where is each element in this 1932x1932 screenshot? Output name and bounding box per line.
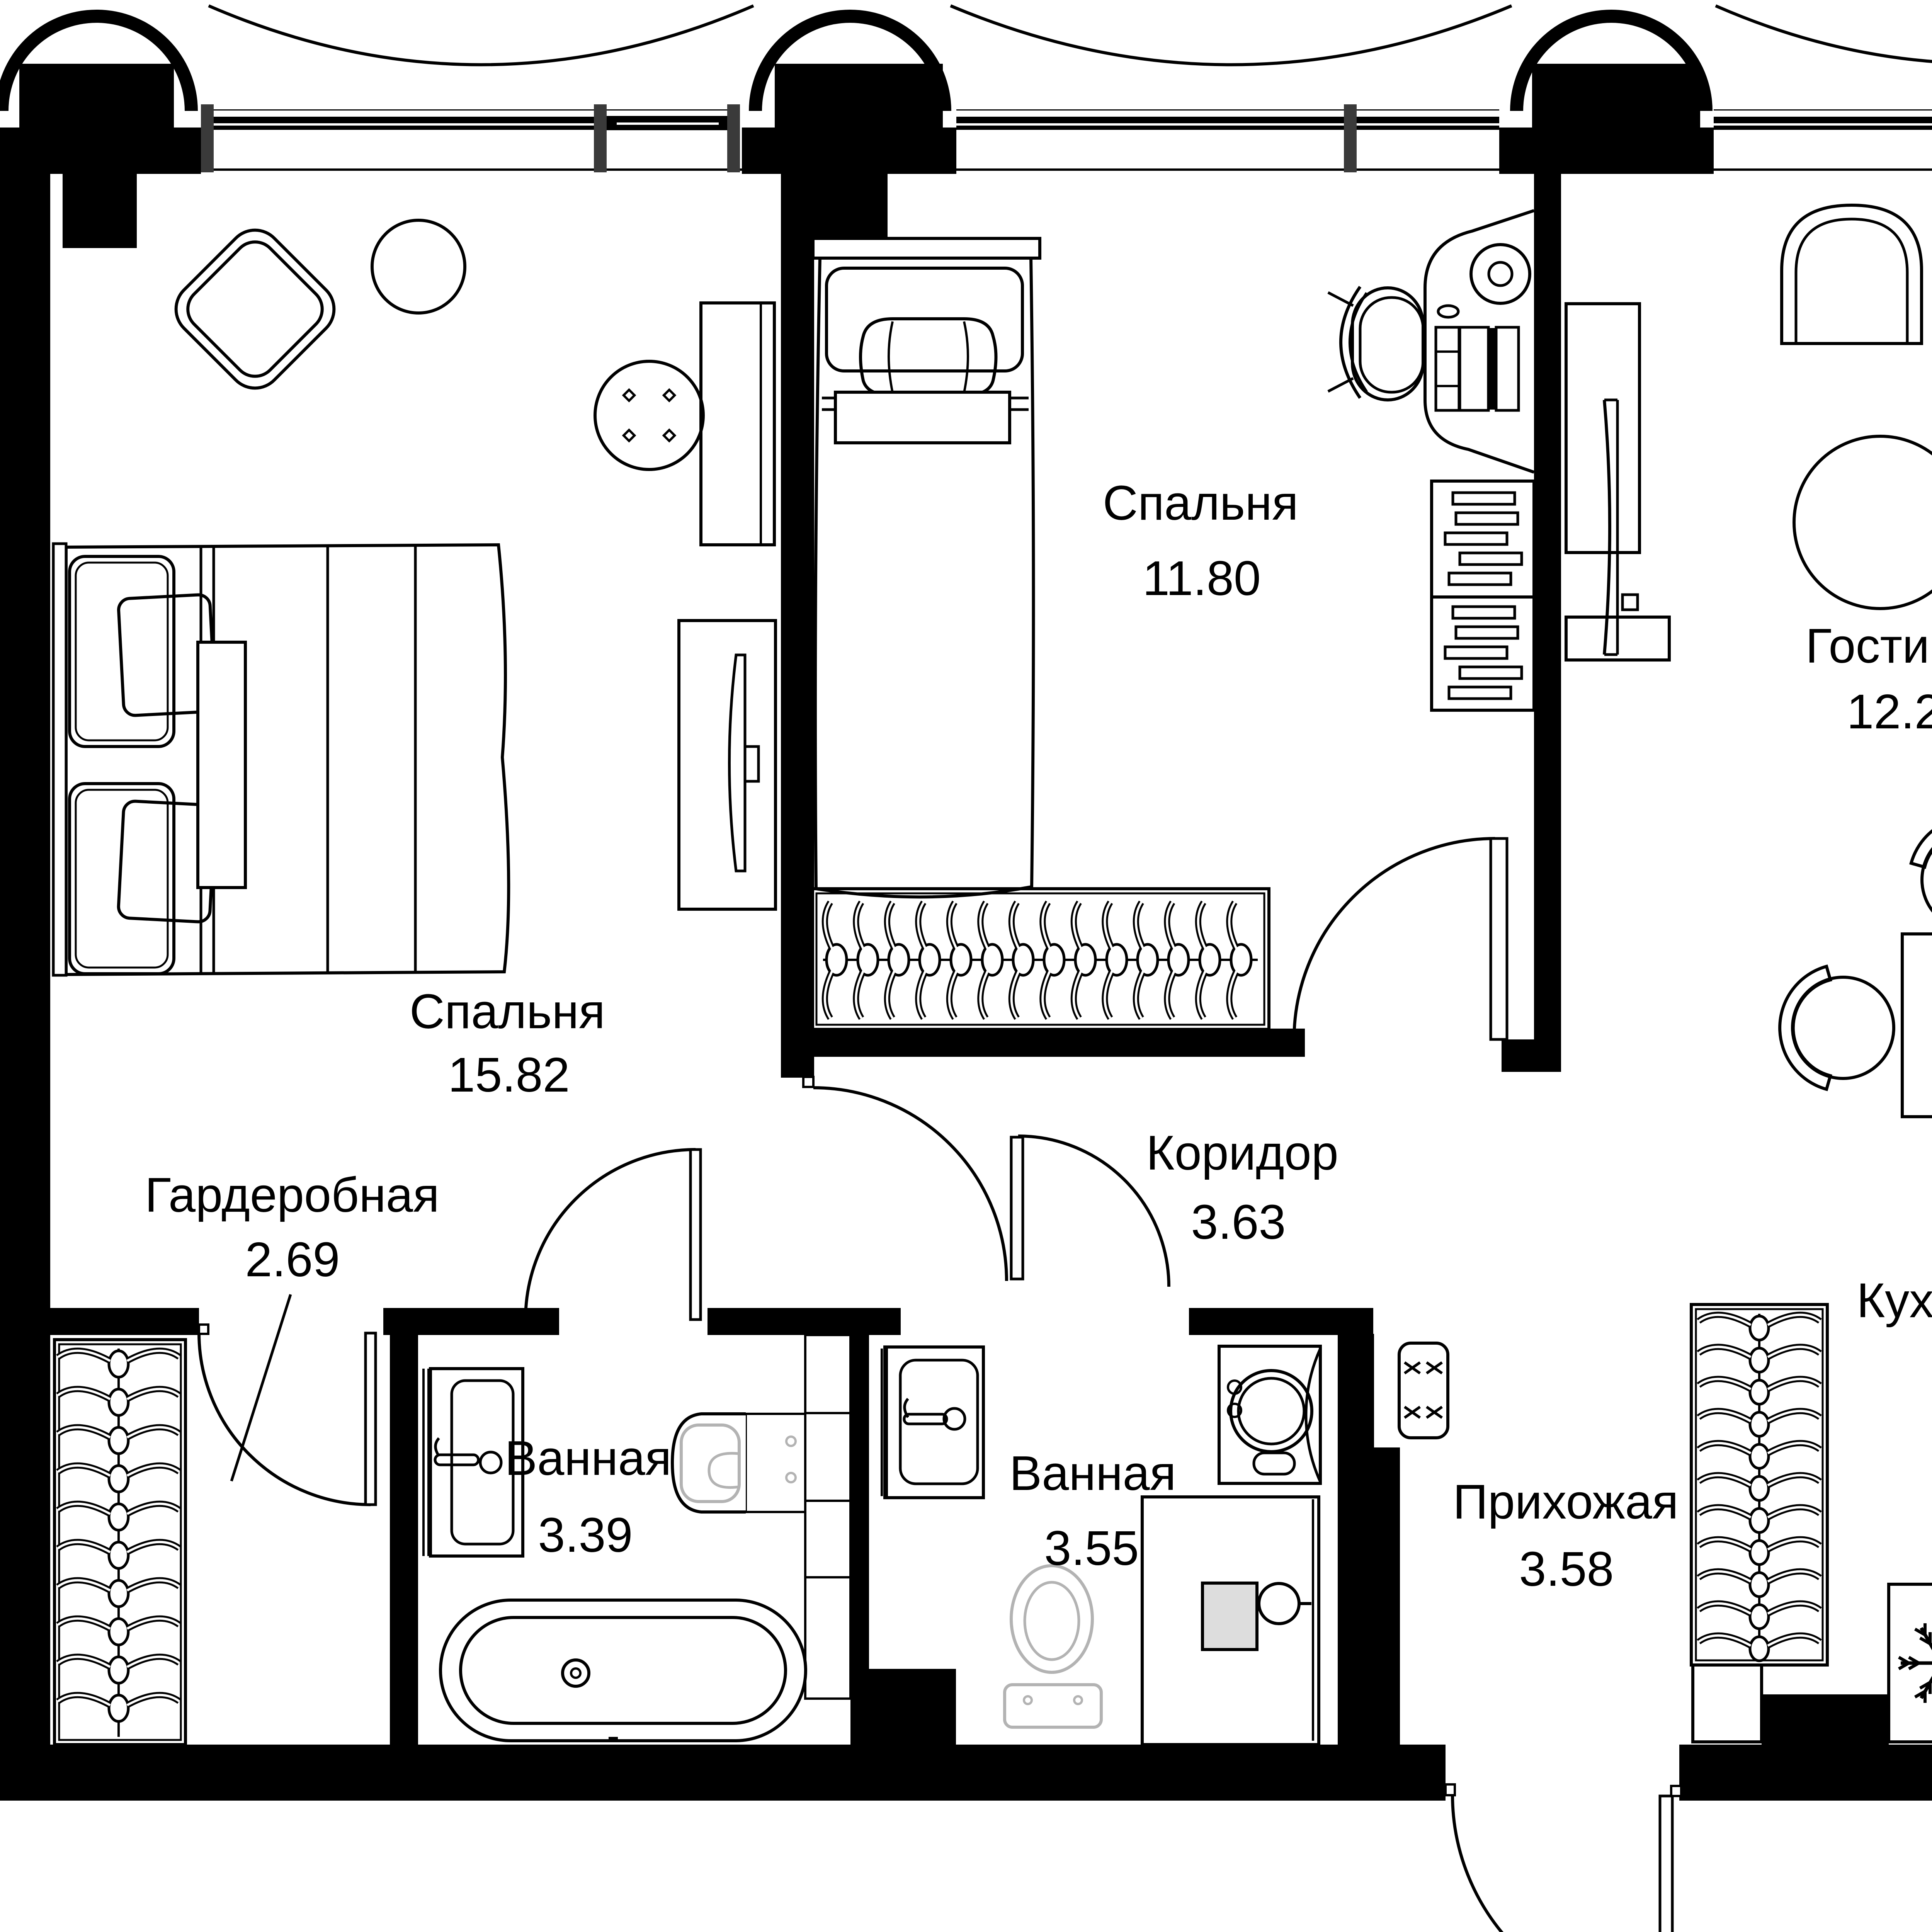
svg-text:3.58: 3.58 xyxy=(1519,1542,1614,1596)
svg-text:Гостиная: Гостиная xyxy=(1806,619,1932,673)
svg-text:11.80: 11.80 xyxy=(1143,551,1261,605)
svg-text:3.39: 3.39 xyxy=(538,1508,633,1562)
svg-text:Спальня: Спальня xyxy=(1103,476,1298,530)
svg-text:3.63: 3.63 xyxy=(1191,1195,1286,1249)
svg-text:Кухня-ниша: Кухня-ниша xyxy=(1857,1273,1932,1328)
svg-text:Ванная: Ванная xyxy=(505,1431,672,1485)
svg-text:Ванная: Ванная xyxy=(1009,1446,1176,1500)
svg-text:Прихожая: Прихожая xyxy=(1453,1475,1679,1529)
svg-text:3.55: 3.55 xyxy=(1044,1521,1139,1575)
svg-text:Коридор: Коридор xyxy=(1146,1126,1338,1180)
svg-text:Гардеробная: Гардеробная xyxy=(145,1168,439,1222)
svg-text:Спальня: Спальня xyxy=(410,984,605,1039)
svg-text:2.69: 2.69 xyxy=(245,1232,340,1287)
svg-text:15.82: 15.82 xyxy=(448,1048,570,1102)
svg-text:12.29: 12.29 xyxy=(1847,684,1932,739)
